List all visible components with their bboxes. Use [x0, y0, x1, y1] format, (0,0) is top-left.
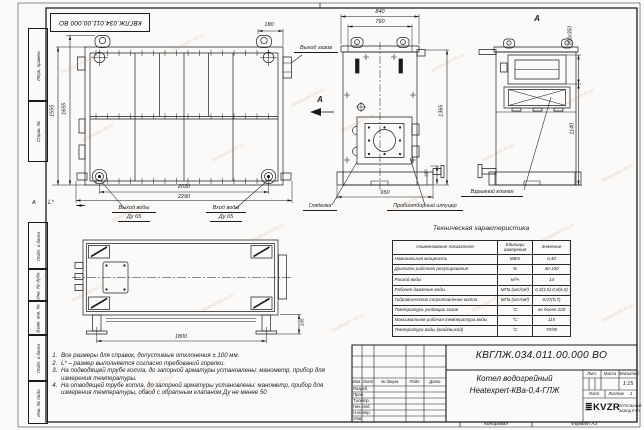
dim-1655: 1655	[62, 94, 68, 124]
spec-row: Диапазон рабочего регулирования%40-100	[393, 265, 571, 275]
spec-cell: 0,07(0,7)	[533, 295, 571, 305]
spec-cell: Максимальная рабочая температура воды	[393, 316, 498, 326]
spec-header-unit: Единицы измерения	[498, 241, 533, 255]
zone-letter: А	[32, 201, 36, 207]
sheets-value: 1	[627, 392, 635, 397]
sheet-label: Лист	[583, 392, 605, 396]
spec-row: Расход водым³/ч14	[393, 275, 571, 285]
spec-cell: Рабочее давление воды	[393, 285, 498, 295]
spec-table-body: Номинальная мощностьМВт0,40Диапазон рабо…	[393, 255, 571, 337]
margin-field-podp-data-2: Подп. и дата	[28, 334, 48, 382]
spec-cell: МПа (кгс/см²)	[498, 285, 533, 295]
format-label: Формат А3	[558, 423, 610, 428]
spec-table-title: Техническая характеристика	[392, 226, 570, 233]
dim-1140: 1140	[570, 114, 576, 144]
spec-row: Номинальная мощностьМВт0,40	[393, 255, 571, 265]
dim-1555: 1555	[50, 96, 56, 126]
spec-cell: %	[498, 265, 533, 275]
row-nachotd: Нач.отд.	[353, 405, 371, 409]
spec-cell: не более 220	[533, 305, 571, 315]
spec-cell: 14	[533, 275, 571, 285]
spec-cell: 40-100	[533, 265, 571, 275]
view-a-title: А	[531, 15, 543, 23]
label-explosion-valve: Взрывной клапан	[461, 190, 523, 197]
label-water-in-dn: Ду 65	[210, 215, 242, 222]
note-item: На отводящей трубе котла, до запорной ар…	[59, 382, 346, 396]
spec-row: Температура воды (вход/выход)°С70/95	[393, 326, 571, 336]
margin-field-podp-data-1: Подп. и дата	[28, 222, 48, 270]
col-izm: Изм.	[352, 380, 362, 384]
margin-field-sprav-no: Справ. №	[28, 100, 48, 162]
side-view-drawing	[332, 14, 449, 205]
spec-cell: 70/95	[533, 326, 571, 336]
view-a-drawing	[478, 39, 582, 190]
dim-2030: 2030	[169, 185, 199, 191]
notes-block: Все размеры для справок, допустимые откл…	[48, 352, 346, 397]
row-nkontr: Н.контр.	[353, 411, 371, 415]
spec-cell: °С	[498, 316, 533, 326]
kvzr-logo-icon: ≣	[585, 403, 593, 412]
margin-field-inv-podl: Инв. № подл.	[28, 380, 48, 424]
spec-cell: 0,3(3,0)-0,6(6,0)	[533, 285, 571, 295]
logo-subtext-2: ЗАВОД РЭП	[619, 410, 640, 414]
corner-stamp-text: КВГЛЖ.034.011.00.000 ВО	[59, 19, 142, 26]
kvzr-logo-text: KVZR	[593, 403, 620, 413]
dim-950: 950	[370, 191, 400, 197]
scale-value: 1:15	[619, 382, 637, 387]
spec-row: Рабочее давление водыМПа (кгс/см²)0,3(3,…	[393, 285, 571, 295]
dim-1800: 1800	[166, 335, 196, 341]
spec-header-name: Наименование показателя	[393, 241, 498, 255]
drawing-title-line2: Heatexpert-КВа-0,4-ГЛЖ	[446, 387, 583, 395]
col-data: Дата	[424, 380, 446, 384]
spec-table: Наименование показателя Единицы измерени…	[392, 240, 571, 337]
drawing-title-line1: Котел водогрейный	[446, 375, 583, 383]
label-sampler-fitting: Пробоотборный штуцер	[387, 204, 463, 211]
row-utv: Утв.	[353, 417, 363, 421]
dim-180-side: 180	[426, 160, 431, 186]
dim-180-front: 180	[255, 23, 283, 29]
col-podp: Подп.	[406, 380, 424, 384]
drawing-sheet: КВГЛЖ.034.011.00.000 ВО Перв. примен. Сп…	[0, 0, 644, 430]
spec-row: Температура уходящих газов°Сне более 220	[393, 305, 571, 315]
col-docum: № докум.	[374, 380, 406, 384]
label-sight-glass: Гляделка	[303, 204, 337, 211]
dim-1365: 1365	[439, 96, 445, 126]
margin-field-vzam-inv: Взам. инв. №	[28, 300, 48, 336]
mass-label: Масса	[601, 372, 619, 376]
dim-2290: 2290	[169, 195, 199, 201]
col-list: Лист	[362, 380, 374, 384]
label-gas-out: Выход газов	[294, 46, 338, 53]
spec-cell: Диапазон рабочего регулирования	[393, 265, 498, 275]
row-tkontr: Т.контр.	[353, 399, 370, 403]
top-view-drawing	[72, 240, 301, 343]
spec-cell: МВт	[498, 255, 533, 265]
spec-cell: 115	[533, 316, 571, 326]
spec-cell: Температура уходящих газов	[393, 305, 498, 315]
spec-header-value: Значение	[533, 241, 571, 255]
sheets-label: Листов	[605, 392, 627, 396]
label-water-out: Выход воды	[112, 206, 156, 213]
copied-label: Копировал	[470, 423, 522, 428]
dim-760: 760	[365, 20, 395, 26]
dim-840: 840	[365, 10, 395, 16]
spec-cell: МПа (кгс/см²)	[498, 295, 533, 305]
front-view-drawing	[52, 29, 334, 209]
spec-row: Максимальная рабочая температура воды°С1…	[393, 316, 571, 326]
spec-cell: 0,40	[533, 255, 571, 265]
label-water-in: Вход воды	[206, 206, 246, 213]
note-item: L* – размер выполняется согласно требова…	[59, 360, 346, 367]
row-razrab: Разраб.	[353, 387, 368, 391]
dim-L: L*	[44, 200, 58, 206]
lit-label: Лит.	[583, 372, 601, 376]
margin-field-inv-dubl: Инв. № дубл.	[28, 268, 48, 302]
label-water-out-dn: Ду 65	[118, 215, 150, 222]
dim-195: 195	[302, 309, 307, 335]
view-arrow-letter: А	[314, 96, 326, 104]
spec-cell: Номинальная мощность	[393, 255, 498, 265]
corner-stamp: КВГЛЖ.034.011.00.000 ВО	[50, 13, 150, 32]
spec-cell: Расход воды	[393, 275, 498, 285]
doc-number: КВГЛЖ.034.011.00.000 ВО	[446, 351, 637, 361]
spec-cell: Гидравлическое сопротивление котла	[393, 295, 498, 305]
spec-cell: °С	[498, 305, 533, 315]
spec-cell: м³/ч	[498, 275, 533, 285]
spec-row: Гидравлическое сопротивление котлаМПа (к…	[393, 295, 571, 305]
row-prov: Пров.	[353, 393, 364, 397]
scale-label: Масштаб	[619, 372, 637, 376]
note-item: На подводящей трубе котла, до запорной а…	[59, 367, 346, 381]
dim-200x350: 200х350	[569, 19, 574, 53]
margin-field-perv-primen: Перв. примен.	[28, 28, 48, 102]
spec-cell: Температура воды (вход/выход)	[393, 326, 498, 336]
note-item: Все размеры для справок, допустимые откл…	[59, 352, 346, 359]
spec-cell: °С	[498, 326, 533, 336]
